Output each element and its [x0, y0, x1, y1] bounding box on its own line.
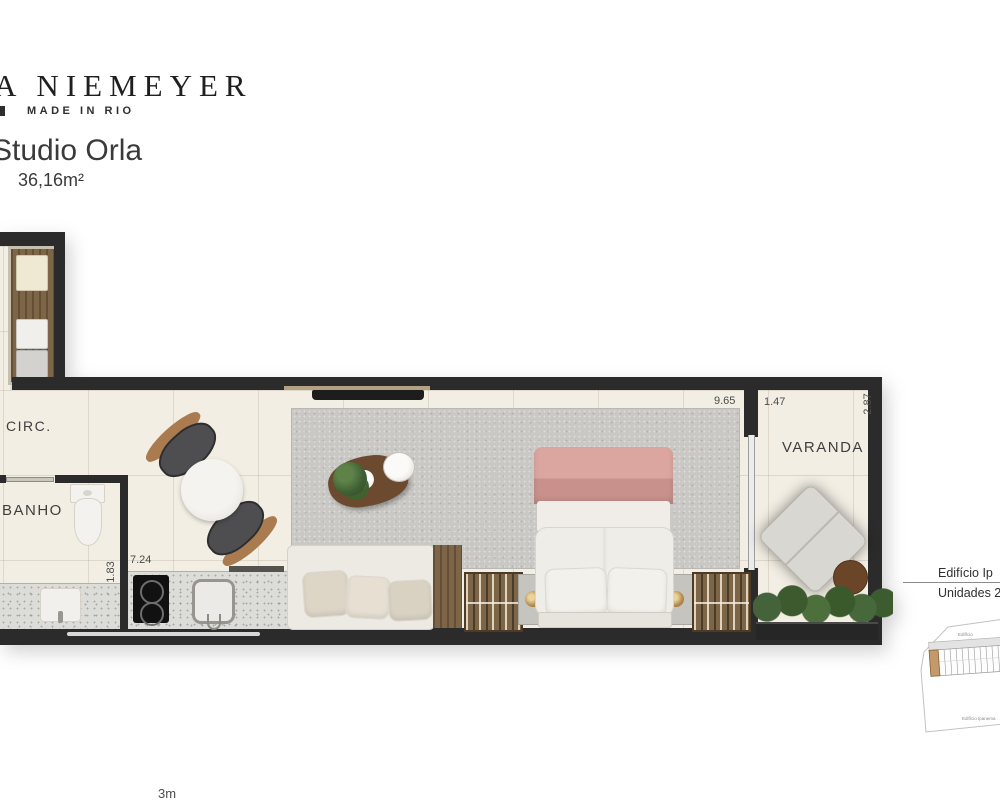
bed-pillow-left: [544, 567, 608, 617]
dim-studio-length: 9.65: [714, 395, 735, 407]
dining-table: [181, 459, 243, 521]
window-bottom-wall: [67, 632, 260, 636]
kitchen-sink: [192, 579, 235, 624]
unit-area: 36,16m²: [18, 170, 84, 191]
bath-faucet: [58, 611, 63, 623]
bath-sink: [40, 588, 81, 622]
wardrobe: [8, 246, 60, 385]
site-map: Edifício Edifício Ipanema: [918, 610, 1000, 750]
wall-bath-top: [55, 475, 128, 483]
folded-linen-cream: [16, 255, 48, 291]
dim-varanda-width: 1.47: [764, 396, 785, 408]
bed-pillow-right: [606, 567, 668, 617]
brand-tagline: MADE IN RIO: [27, 105, 135, 117]
sofa-side-panel: [433, 545, 462, 628]
key-plan-units: Unidades 2: [938, 586, 1000, 600]
site-map-label-top: Edifício: [958, 632, 973, 637]
bed-headboard: [538, 612, 672, 628]
folded-linen-white: [16, 319, 48, 349]
planter-box: [756, 622, 878, 640]
wall-closet-right: [54, 232, 65, 390]
logo-mark-fragment: [0, 106, 5, 116]
building-block: [929, 637, 1000, 676]
header: A NIEMEYER MADE IN RIO Studio Orla 36,16…: [0, 60, 400, 200]
tv: [312, 390, 424, 400]
brand-logo: A NIEMEYER: [0, 68, 253, 104]
key-plan-building-name: Edifício Ip: [938, 566, 993, 580]
shelf-divider: [694, 602, 749, 604]
kitchen-niche: [229, 566, 284, 572]
plant: [333, 462, 367, 496]
page-title: Studio Orla: [0, 134, 142, 168]
bed-blanket-pink: [534, 447, 673, 504]
wall-varanda-stub-top: [744, 390, 758, 437]
room-label-circ: CIRC.: [6, 418, 52, 434]
wall-bath-right: [120, 475, 128, 628]
site-map-label-bottom: Edifício Ipanema: [962, 716, 996, 721]
room-label-banho: BANHO: [2, 502, 63, 519]
toilet-flush-button: [83, 490, 92, 496]
toilet-bowl: [74, 498, 102, 546]
floor-plan: CIRC. BANHO STUDIO VARANDA 7.24 1.83 9.6…: [0, 232, 900, 647]
bath-door-leaf: [6, 477, 54, 482]
bookshelf-right: [692, 572, 751, 632]
highlighted-unit: [929, 650, 940, 677]
scale-label: 3m: [158, 786, 176, 800]
kitchen-faucet: [207, 614, 221, 630]
dim-kitchen-length: 7.24: [130, 554, 151, 566]
side-table: [383, 452, 415, 482]
shelf-divider: [466, 602, 521, 604]
room-label-varanda: VARANDA: [782, 439, 864, 456]
bookshelf-left: [464, 572, 523, 632]
burner-1: [140, 580, 164, 604]
lounge-cushion-divider: [785, 511, 839, 565]
sofa-pillow-2: [345, 575, 391, 620]
key-plan-divider: [903, 582, 1000, 583]
sofa-pillow-3: [387, 579, 433, 622]
wall-top: [12, 377, 882, 390]
folded-linen-gray: [16, 350, 48, 378]
floorplan-sheet: { "header": { "brand": "A NIEMEYER", "ta…: [0, 0, 1000, 800]
planter-plants: [753, 584, 893, 626]
dim-varanda-depth: 2.87: [862, 387, 874, 421]
sofa-pillow-1: [301, 569, 350, 618]
varanda-glass-door: [748, 435, 755, 570]
burner-2: [140, 602, 164, 626]
cooktop: [133, 575, 169, 623]
